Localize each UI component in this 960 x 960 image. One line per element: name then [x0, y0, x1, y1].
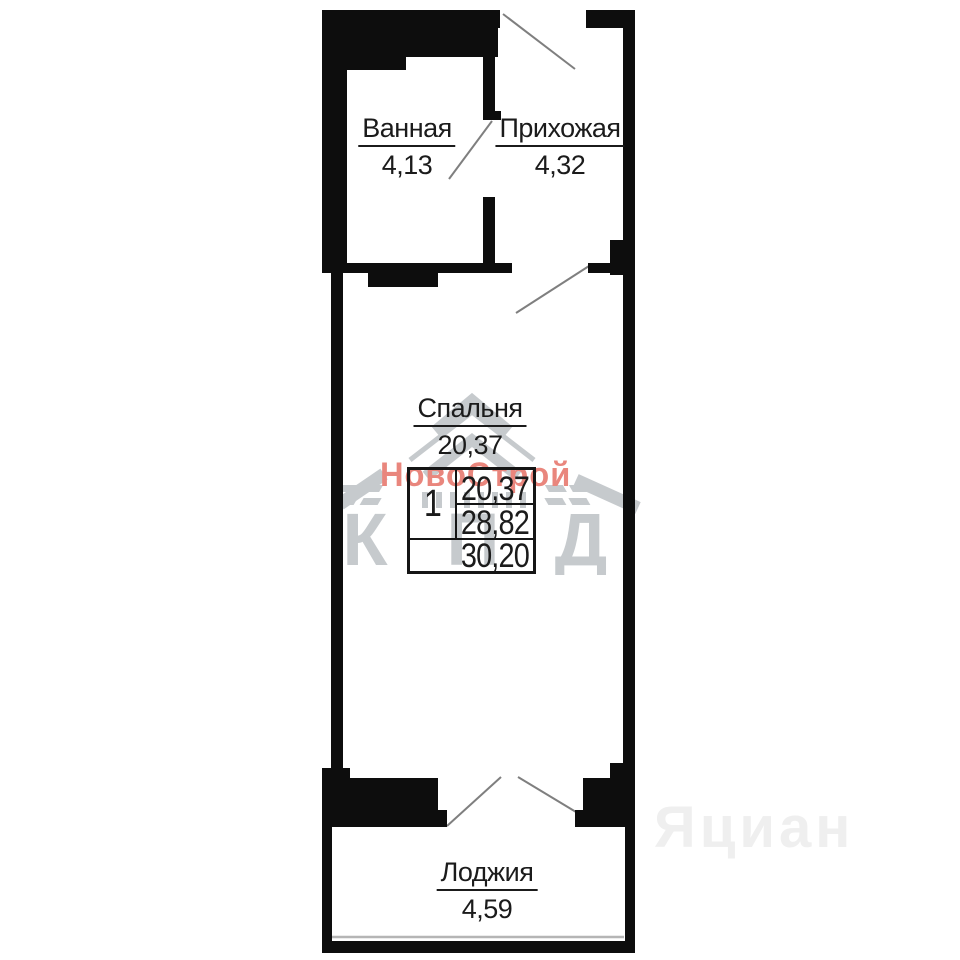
- bedroom-door-swing-line: [516, 266, 589, 313]
- wall-bath-header-b: [322, 57, 406, 70]
- wall-left-bathroom: [322, 70, 347, 263]
- room-area-bathroom: 4,13: [382, 151, 433, 179]
- balcony-door-swing-line-right: [518, 777, 576, 812]
- wall-right-stub-bottom: [610, 763, 623, 778]
- table-total-area: 30,20: [461, 537, 527, 576]
- wall-loggia-left: [322, 827, 332, 947]
- room-name-loggia: Лоджия: [437, 858, 538, 891]
- wall-balcony-left-a: [322, 778, 438, 811]
- room-area-loggia: 4,59: [462, 895, 513, 923]
- room-label-bedroom: Спальня 20,37: [414, 394, 527, 460]
- floor-plan: К П Д НовоСтрой Яциан Ванная 4,13 Прихож…: [0, 0, 960, 960]
- wall-left-bedroom: [331, 273, 343, 768]
- room-label-hallway: Прихожая 4,32: [495, 114, 624, 180]
- wall-bedroom-door-stub: [588, 263, 610, 273]
- wall-right-outer: [623, 28, 635, 778]
- entrance-door-swing-line: [503, 14, 575, 69]
- table-rooms-count: 1: [413, 483, 451, 526]
- wall-right-stub-top: [610, 240, 623, 275]
- wall-loggia-bottom: [322, 941, 635, 953]
- room-label-bathroom: Ванная 4,13: [358, 114, 455, 180]
- wall-duct-block: [368, 273, 438, 287]
- area-summary-table: 1 20,37 28,82 30,20: [407, 467, 536, 574]
- balcony-door-swing-line-left: [447, 777, 501, 826]
- room-name-bathroom: Ванная: [358, 114, 455, 147]
- wall-top-left: [322, 10, 500, 28]
- room-name-bedroom: Спальня: [414, 394, 527, 427]
- room-label-loggia: Лоджия 4,59: [437, 858, 538, 924]
- room-name-hallway: Прихожая: [495, 114, 624, 147]
- wall-top-right: [586, 10, 635, 28]
- room-area-bedroom: 20,37: [437, 431, 502, 459]
- wall-divider-lower: [483, 197, 495, 263]
- wall-balcony-left-b: [322, 810, 447, 827]
- wall-balcony-right-b: [575, 810, 635, 827]
- wall-bath-header-a: [322, 28, 498, 57]
- wall-hall-bottom-band: [322, 263, 512, 273]
- wall-loggia-right: [625, 827, 635, 947]
- wall-divider-upper: [483, 57, 495, 111]
- wall-balcony-right-a: [583, 778, 635, 811]
- room-area-hallway: 4,32: [535, 151, 586, 179]
